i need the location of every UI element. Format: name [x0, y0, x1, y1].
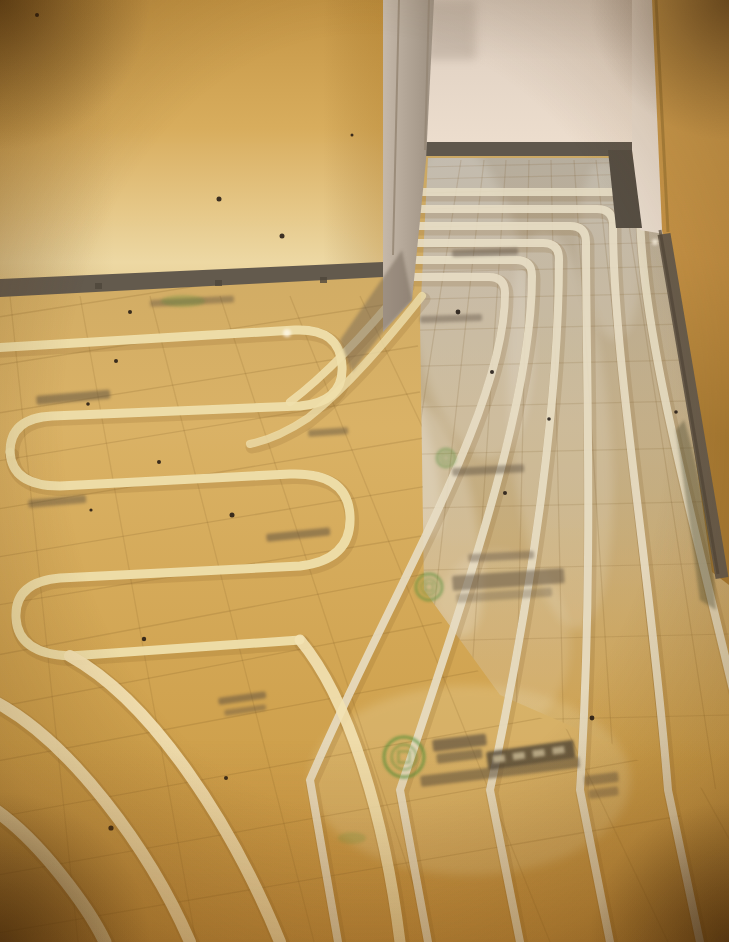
vignette — [0, 0, 729, 942]
room-photo — [0, 0, 729, 942]
photo-canvas — [0, 0, 729, 942]
